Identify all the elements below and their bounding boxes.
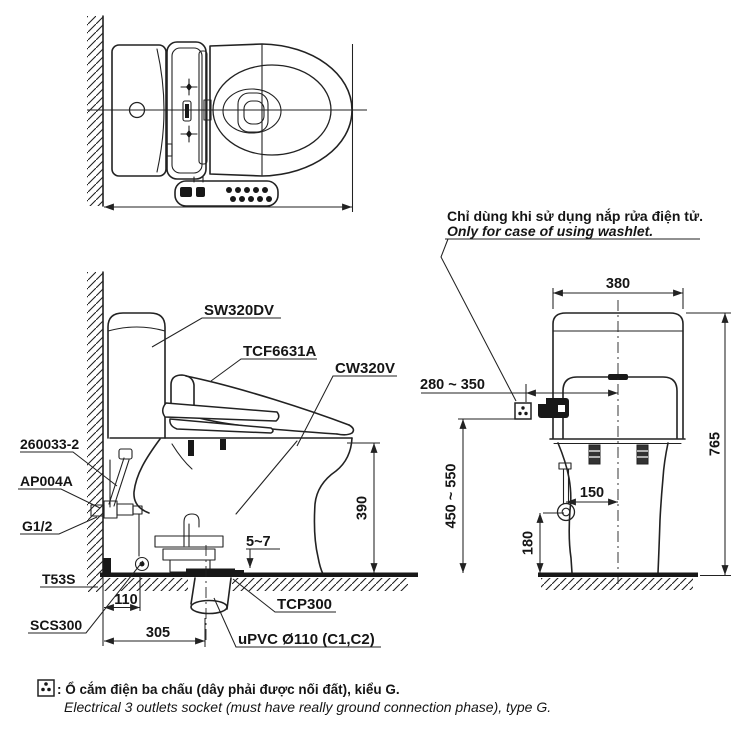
dim-supply-height: 180 <box>521 531 537 555</box>
part-labels: SW320DV TCF6631A CW320V 260033-2 AP004A … <box>18 302 397 648</box>
panel-buttons <box>180 187 272 202</box>
floor-line-side <box>100 573 418 578</box>
side-view <box>87 272 418 646</box>
label-bowl: CW320V <box>335 360 395 377</box>
pedestal-right <box>658 443 668 573</box>
legend-english: Electrical 3 outlets socket (must have r… <box>64 699 551 715</box>
dim-socket-height: 450 ~ 550 <box>444 464 460 529</box>
dim-tank-width: 380 <box>606 276 630 292</box>
label-angle-valve: AP004A <box>20 473 73 489</box>
label-drain-pipe: uPVC Ø110 (C1,C2) <box>238 631 375 648</box>
socket-legend-icon <box>38 680 54 696</box>
label-supply-hose: SCS300 <box>30 617 82 633</box>
top-view <box>87 16 367 212</box>
legend-vietnamese: : Ổ cắm điện ba chấu (dây phải được nối … <box>57 682 400 697</box>
washlet-note: Chỉ dùng khi sử dụng nắp rửa điện tử. On… <box>441 207 703 401</box>
note-vietnamese: Chỉ dùng khi sử dụng nắp rửa điện tử. <box>447 207 703 224</box>
label-tank: SW320DV <box>204 302 274 319</box>
water-supply-front <box>558 463 575 521</box>
tank-side <box>108 313 165 438</box>
washlet-side <box>163 375 354 456</box>
dim-total-height: 765 <box>708 432 724 456</box>
dim-drain-from-wall: 305 <box>146 625 170 641</box>
note-english: Only for case of using washlet. <box>447 223 653 239</box>
socket-legend: : Ổ cắm điện ba chấu (dây phải được nối … <box>38 680 551 715</box>
label-water-thread: G1/2 <box>22 518 53 534</box>
label-tank-connector: 260033-2 <box>20 436 79 452</box>
wall-hatch-side <box>87 272 103 592</box>
seat-bolts-front <box>589 445 648 464</box>
washlet-power-plug <box>537 397 569 418</box>
tank-plan <box>112 45 166 176</box>
dim-rim-height: 390 <box>355 496 371 520</box>
toilet-installation-diagram: 380 765 450 ~ 550 280 ~ 350 150 180 390 … <box>0 0 740 740</box>
technical-drawing: 380 765 450 ~ 550 280 ~ 350 150 180 390 … <box>0 0 740 740</box>
front-view <box>458 300 698 590</box>
dim-supply-offset: 150 <box>580 485 604 501</box>
power-socket-icon <box>515 403 531 419</box>
trapway-and-flush-valve <box>155 514 223 572</box>
label-stop-valve: T53S <box>42 571 75 587</box>
dim-socket-offset: 280 ~ 350 <box>420 377 485 393</box>
wall-hatch-top <box>87 16 103 206</box>
floor-line-front <box>538 573 698 578</box>
label-washlet-seat: TCF6631A <box>243 343 317 360</box>
bowl-side <box>110 438 352 574</box>
washlet-front <box>563 377 677 438</box>
dim-valve-from-wall: 110 <box>114 592 137 608</box>
label-floor-flange: TCP300 <box>277 596 332 613</box>
dim-base-gap: 5~7 <box>246 534 271 550</box>
